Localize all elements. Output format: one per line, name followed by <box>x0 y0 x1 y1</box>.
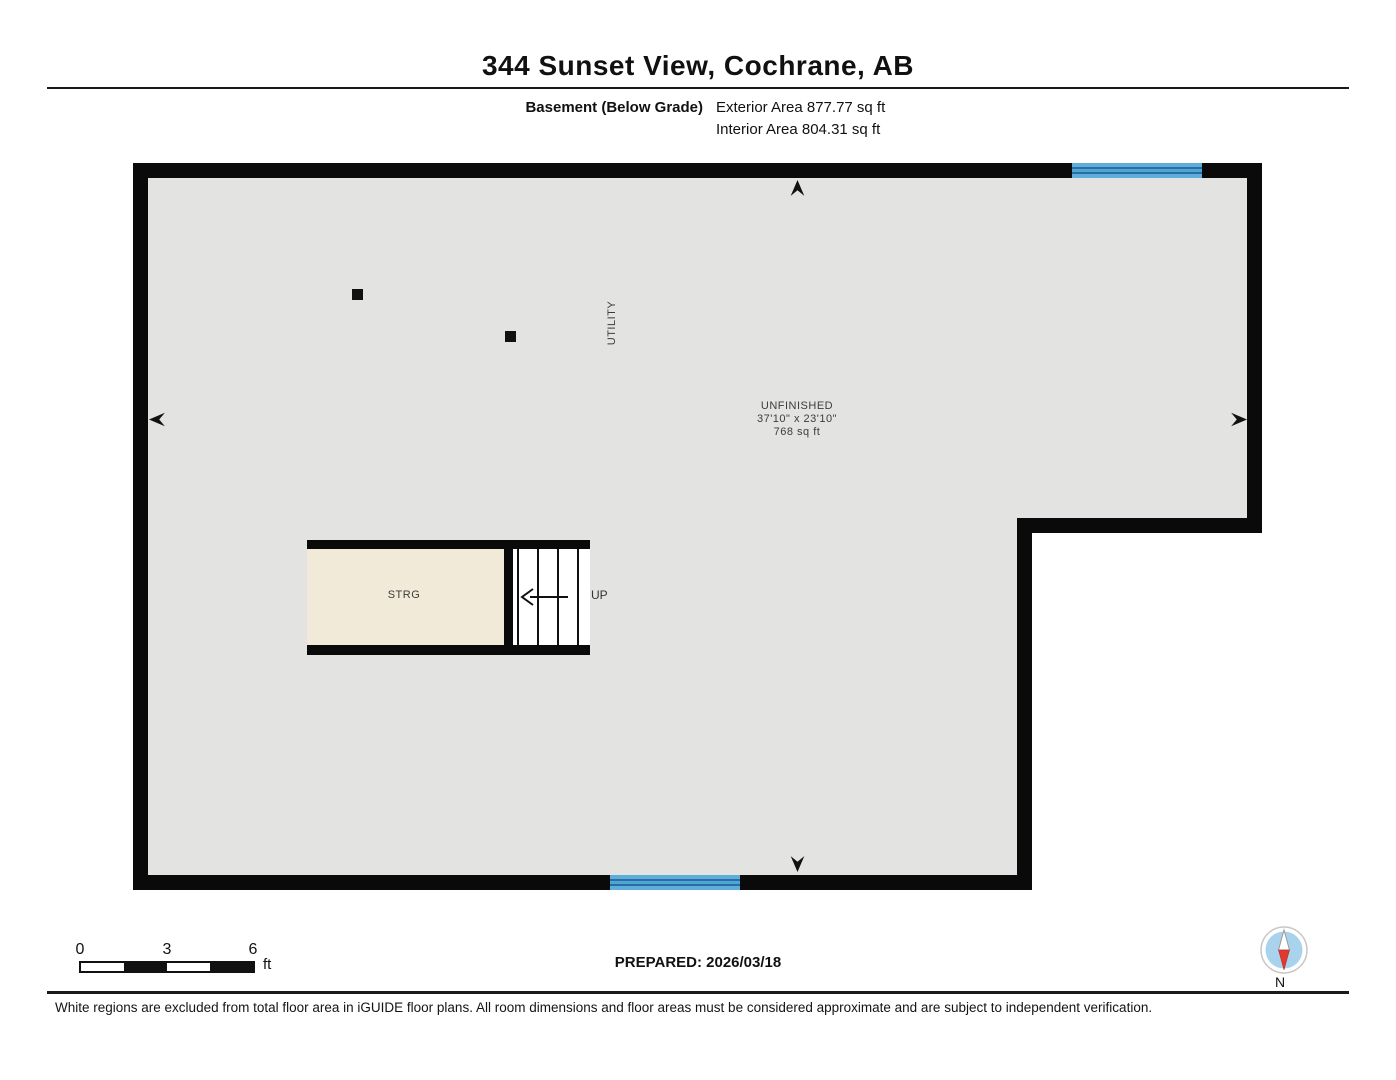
interior-fill-lower <box>148 178 1017 877</box>
window-bottom <box>610 875 740 890</box>
stairs-up-arrow-icon <box>518 585 574 609</box>
footer-divider <box>47 991 1349 994</box>
exterior-area-label: Exterior Area 877.77 sq ft <box>716 99 885 116</box>
room-area: 768 sq ft <box>697 426 897 439</box>
scale-tick-3: 3 <box>156 941 178 959</box>
scale-tick-6: 6 <box>242 941 264 959</box>
storage-wall-top <box>307 540 590 549</box>
floor-name-label: Basement (Below Grade) <box>330 99 703 116</box>
page-title: 344 Sunset View, Cochrane, AB <box>0 50 1396 82</box>
storage-stairs-divider-wall <box>504 549 513 645</box>
storage-wall-bottom <box>307 645 590 655</box>
disclaimer-text: White regions are excluded from total fl… <box>55 1000 1355 1015</box>
dimension-arrow-right-icon <box>1230 412 1247 427</box>
stairs-up-label: UP <box>591 588 608 602</box>
interior-area-label: Interior Area 804.31 sq ft <box>716 121 880 138</box>
utility-room-label: UTILITY <box>606 263 618 383</box>
post-marker <box>352 289 363 300</box>
window-top <box>1072 163 1202 178</box>
unfinished-room-label: UNFINISHED 37'10" x 23'10" 768 sq ft <box>697 400 897 439</box>
wall-left <box>133 163 148 890</box>
dimension-arrow-down-icon <box>790 855 805 872</box>
scale-unit-label: ft <box>263 956 271 973</box>
room-dimensions: 37'10" x 23'10" <box>697 413 897 426</box>
scale-segment <box>210 963 253 971</box>
scale-bar <box>79 961 255 973</box>
compass-north-label: N <box>1268 974 1292 990</box>
header-divider <box>47 87 1349 89</box>
scale-segment <box>124 963 167 971</box>
wall-notch <box>1017 518 1262 533</box>
compass-icon <box>1258 925 1310 977</box>
wall-bottom <box>133 875 1032 890</box>
stair-tread-line <box>577 549 579 645</box>
room-name: UNFINISHED <box>697 400 897 413</box>
storage-room-label: STRG <box>354 589 454 601</box>
scale-segment <box>167 963 210 971</box>
dimension-arrow-up-icon <box>790 180 805 197</box>
scale-segment <box>81 963 124 971</box>
wall-right-lower <box>1017 518 1032 890</box>
dimension-arrow-left-icon <box>149 412 166 427</box>
scale-tick-0: 0 <box>69 941 91 959</box>
wall-right-upper <box>1247 163 1262 533</box>
prepared-date-label: PREPARED: 2026/03/18 <box>548 954 848 971</box>
post-marker <box>505 331 516 342</box>
